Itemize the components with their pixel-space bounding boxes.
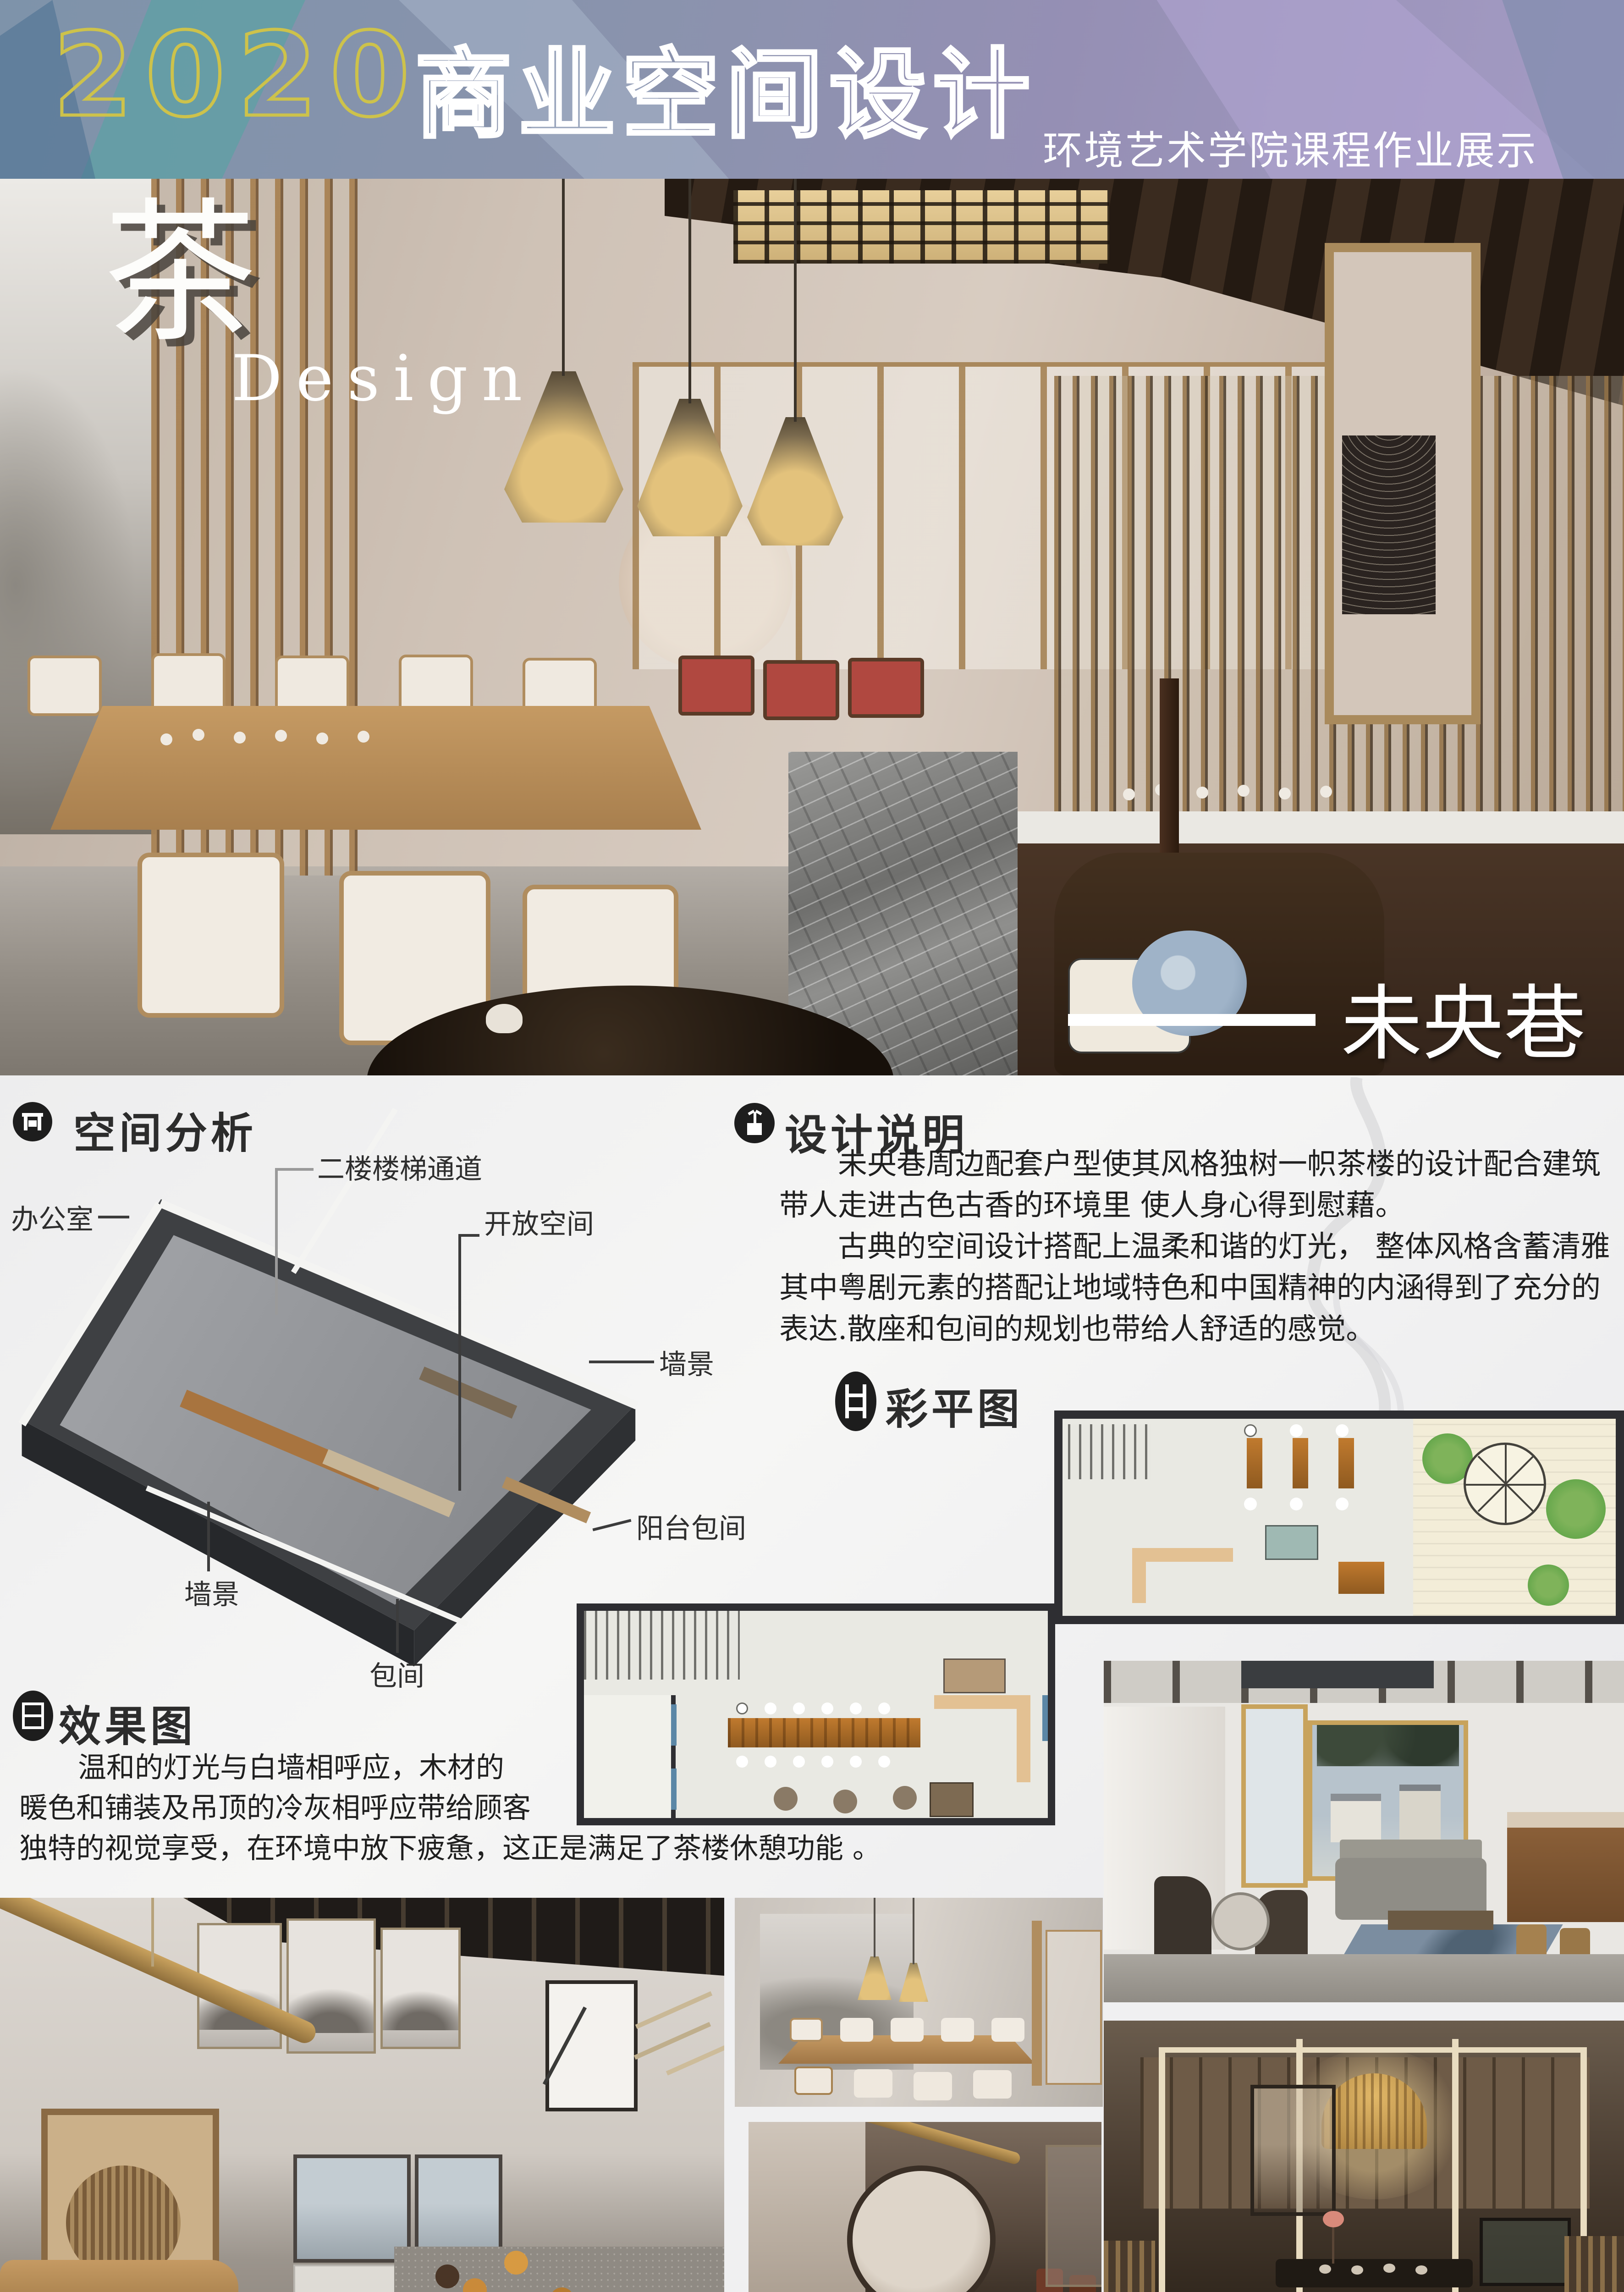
wall-panel — [749, 2122, 865, 2292]
label-balcony: 阳台包间 — [636, 1506, 746, 1546]
cage-shelf — [1250, 2085, 1336, 2216]
hero-lattice-skylight — [733, 190, 1109, 264]
tea-set — [193, 729, 204, 741]
teapot — [486, 1004, 523, 1033]
red-cushion-seat — [848, 658, 924, 718]
leader-line — [458, 1234, 461, 1491]
chair-icon — [24, 1117, 28, 1130]
label-open-space: 开放空间 — [484, 1202, 594, 1242]
brand-character: 茶 — [103, 197, 257, 351]
wall-art — [545, 1980, 638, 2111]
partition-panel — [1046, 1930, 1102, 2085]
poster-title: 商业空间设计 — [415, 16, 1036, 157]
white-cabinet — [293, 2264, 402, 2292]
plan1-stool — [736, 1702, 748, 1714]
partition-frame — [1032, 1921, 1042, 2086]
plan2-table — [1293, 1438, 1308, 1488]
tea-chair — [138, 853, 284, 1018]
metal-chair — [1154, 1876, 1211, 1959]
shelf-icon — [22, 1702, 25, 1729]
frame-bar — [1159, 2047, 1587, 2053]
plant-pot-icon — [747, 1123, 762, 1135]
plan2-counter — [1132, 1548, 1233, 1562]
chair-icon — [22, 1113, 43, 1117]
plan2-dining-table — [1338, 1562, 1384, 1594]
header-band: 2020 商业空间设计 环境艺术学院课程作业展示 — [0, 0, 1624, 179]
floor-plan-level2 — [1054, 1410, 1624, 1624]
gold-frame-door — [1241, 1704, 1308, 1888]
render-photo-zen-room — [1104, 2021, 1624, 2292]
plan2-counter — [1132, 1548, 1146, 1603]
leader-line — [458, 1234, 479, 1237]
flower-stem — [1332, 2222, 1334, 2264]
low-table — [1276, 2259, 1473, 2287]
wood-bar — [1507, 1812, 1624, 1922]
chair-icon — [28, 1120, 37, 1127]
plan1-service-table — [943, 1658, 1006, 1693]
hanging-rope — [151, 1898, 154, 1967]
picture-window — [1308, 1720, 1468, 1881]
renders-paragraph: 温和的灯光与白墙相呼应，木材的 暖色和铺装及吊顶的冷灰相呼应带给顾客 独特的视觉… — [19, 1747, 780, 1868]
window-view — [293, 2154, 411, 2263]
hero-fishscale-window — [1342, 435, 1436, 614]
label-office: 办公室 — [11, 1197, 94, 1237]
notes-line: 未央巷周边配套户型使其风格独树一帜茶楼的设计配合建筑 — [779, 1144, 1624, 1185]
brand-word: Design — [231, 342, 536, 415]
railing — [1104, 2241, 1155, 2292]
plan2-plant — [1546, 1479, 1606, 1539]
plan2-umbrella — [1464, 1443, 1546, 1525]
leader-line — [275, 1168, 278, 1315]
notes-line: 古典的空间设计搭配上温柔和谐的灯光， 整体风格含蓄清雅 — [779, 1226, 1624, 1267]
live-edge-table — [0, 2260, 238, 2292]
chair-cushion — [794, 2066, 833, 2095]
frame-bar — [1159, 2048, 1165, 2292]
leader-line — [98, 1216, 129, 1218]
shelf-icon — [22, 1726, 44, 1729]
bunk-shelf-icon — [863, 1384, 866, 1418]
hanging-mountain-screen — [380, 1928, 461, 2049]
leader-line — [396, 1599, 399, 1653]
lamp-cord — [874, 1898, 875, 1957]
plan1-stairs — [584, 1611, 740, 1680]
analysis-section-title: 空间分析 — [73, 1099, 257, 1160]
plan2-plant — [1528, 1565, 1569, 1606]
poster-subtitle: 环境艺术学院课程作业展示 — [1043, 118, 1538, 176]
renders-line: 独特的视觉享受，在环境中放下疲惫，这正是满足了茶楼休憩功能 。 — [19, 1828, 780, 1868]
red-cushion-seat — [763, 660, 839, 720]
plan1-long-bar — [728, 1718, 920, 1747]
floor — [1104, 1954, 1624, 2002]
renders-line: 温和的灯光与白墙相呼应，木材的 — [19, 1747, 780, 1788]
axonometric-diagram — [9, 1174, 642, 1687]
red-cushion-seat — [678, 656, 754, 716]
plan1-window — [1042, 1695, 1048, 1741]
plan2-table — [1247, 1438, 1262, 1488]
plan1-square-table — [930, 1782, 974, 1817]
plant-pot-icon — [754, 1112, 756, 1123]
chair-cushion — [790, 2018, 823, 2042]
glass-case — [1480, 2218, 1571, 2286]
building — [1399, 1785, 1441, 1841]
store-name: 未央巷 — [1341, 958, 1585, 1075]
stone-counter — [394, 2247, 724, 2292]
poster-year: 2020 — [53, 8, 422, 143]
building — [1331, 1794, 1381, 1842]
tree-silhouette — [1317, 1725, 1459, 1766]
brush-stroke — [543, 2006, 587, 2085]
lamp-cord — [794, 179, 797, 422]
plan1-counter — [1017, 1695, 1030, 1782]
bunk-shelf-icon — [845, 1384, 849, 1418]
render-photo-dining — [735, 1898, 1103, 2107]
coffee-table — [1388, 1911, 1493, 1930]
notes-line: 带人走进古色古香的环境里 使人身心得到慰藉。 — [779, 1185, 1624, 1226]
lamp-cord — [688, 179, 691, 403]
design-poster: 2020 商业空间设计 环境艺术学院课程作业展示 — [0, 0, 1624, 2292]
render-photo-moon-bar — [749, 2122, 1101, 2292]
flower — [1323, 2211, 1344, 2227]
label-stair: 二楼楼梯通道 — [317, 1147, 482, 1187]
railing — [1564, 2236, 1624, 2292]
plan-section-title: 彩平图 — [886, 1375, 1023, 1436]
hero-photo-teahouse: 茶 Design 未央巷 — [0, 179, 1624, 1075]
shelf-icon — [22, 1702, 44, 1705]
render-photo-tearoom-large — [0, 1898, 724, 2292]
leader-line — [589, 1361, 654, 1363]
plan2-table — [1338, 1438, 1354, 1488]
bunk-shelf-icon — [845, 1407, 866, 1411]
plan2-stairs — [1068, 1424, 1151, 1479]
plan-section-icon — [835, 1372, 876, 1431]
renders-line: 暖色和铺装及吊顶的冷灰相呼应带给顾客 — [19, 1788, 780, 1828]
notes-line: 其中粤剧元素的搭配让地域特色和中国精神的内涵得到了充分的 — [779, 1267, 1624, 1309]
shelf-icon — [22, 1714, 44, 1717]
plan1-window — [671, 1704, 677, 1746]
plan2-chair — [1244, 1424, 1257, 1437]
pine-branch — [635, 1991, 713, 2029]
long-tea-table — [50, 706, 701, 830]
leader-line — [275, 1168, 314, 1171]
design-notes-paragraph: 未央巷周边配套户型使其风格独树一帜茶楼的设计配合建筑 带人走进古色古香的环境里 … — [779, 1144, 1624, 1350]
renders-section-title: 效果图 — [59, 1692, 196, 1753]
lamp-cord — [562, 179, 565, 376]
label-wall-left: 墙景 — [184, 1572, 239, 1612]
tea-set — [1319, 2264, 1331, 2274]
notes-line: 表达.散座和包间的规划也带给人舒适的感觉。 — [779, 1309, 1624, 1350]
store-name-underline — [1068, 1014, 1316, 1026]
shelf-icon — [41, 1702, 44, 1729]
dark-slab — [1241, 1661, 1434, 1688]
round-marble-table — [1211, 1892, 1270, 1950]
lamp-cord — [913, 1898, 914, 1964]
render-photo-lounge — [1104, 1661, 1624, 2002]
label-wall-right: 墙景 — [659, 1342, 714, 1382]
tea-chair — [28, 656, 102, 716]
chair-icon — [38, 1117, 41, 1130]
renders-section-icon — [13, 1691, 53, 1741]
analysis-section-icon — [13, 1102, 52, 1141]
notes-section-icon — [734, 1103, 775, 1143]
moon-mirror — [847, 2165, 996, 2292]
tea-chair — [151, 653, 226, 714]
plan1-counter — [934, 1695, 1030, 1709]
bunk-shelf-icon — [845, 1394, 866, 1397]
plan2-sofa — [1265, 1525, 1318, 1560]
leader-line — [207, 1502, 210, 1571]
label-private-room: 包间 — [369, 1654, 424, 1694]
side-panel — [1046, 2145, 1101, 2287]
